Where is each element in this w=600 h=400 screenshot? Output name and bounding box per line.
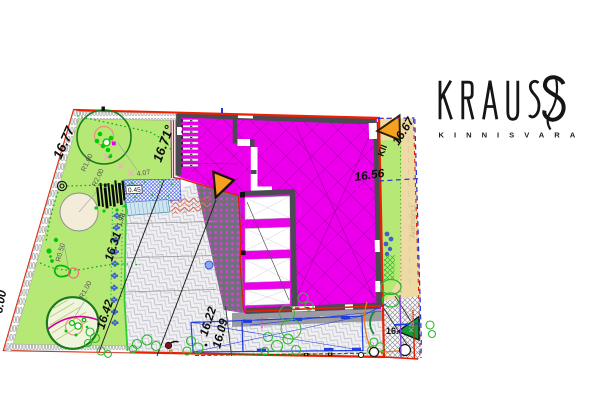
svg-text:16.: 16. [386,326,399,336]
svg-text:0.45: 0.45 [128,187,141,195]
svg-text:Kändus: Kändus [407,306,416,332]
svg-text:Aiansoni t: Aiansoni t [408,204,417,238]
svg-text:KINNISVARA: KINNISVARA [439,131,586,140]
